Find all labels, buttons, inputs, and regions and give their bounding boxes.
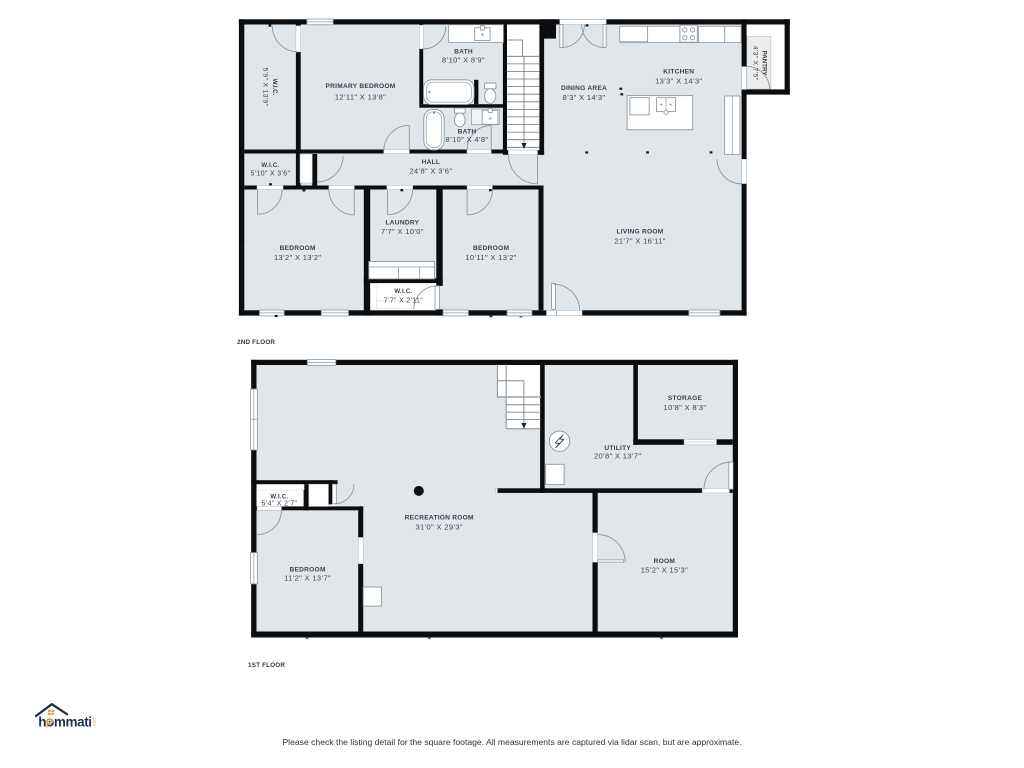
svg-text:2ND FLOOR: 2ND FLOOR bbox=[237, 339, 275, 346]
svg-text:5’4" X 2’7": 5’4" X 2’7" bbox=[262, 501, 298, 508]
svg-text:8’10" X 8’9": 8’10" X 8’9" bbox=[442, 56, 485, 65]
svg-text:.com: .com bbox=[92, 717, 97, 727]
svg-text:15’2" X 15’3": 15’2" X 15’3" bbox=[641, 566, 688, 575]
svg-text:10’8" X 8’3": 10’8" X 8’3" bbox=[664, 403, 707, 412]
svg-text:13’2" X 13’2": 13’2" X 13’2" bbox=[274, 253, 321, 262]
svg-text:STORAGE: STORAGE bbox=[668, 395, 703, 402]
svg-text:PANTRY: PANTRY bbox=[761, 51, 768, 77]
svg-text:W.I.C.: W.I.C. bbox=[394, 288, 412, 295]
svg-text:13’3" X 14’3": 13’3" X 14’3" bbox=[655, 76, 702, 85]
svg-text:BATH: BATH bbox=[454, 48, 473, 55]
svg-text:DINING AREA: DINING AREA bbox=[561, 85, 607, 92]
svg-text:8’10" X 4’8": 8’10" X 4’8" bbox=[446, 135, 489, 144]
svg-text:W.I.C.: W.I.C. bbox=[270, 493, 288, 500]
svg-text:12’11" X 13’8": 12’11" X 13’8" bbox=[335, 93, 386, 102]
svg-text:10’11" X 13’2": 10’11" X 13’2" bbox=[465, 253, 516, 262]
svg-text:W.I.C.: W.I.C. bbox=[271, 79, 278, 96]
svg-text:PRIMARY BEDROOM: PRIMARY BEDROOM bbox=[325, 83, 395, 90]
svg-text:4’3" X 7’5": 4’3" X 7’5" bbox=[751, 46, 758, 81]
svg-text:hommati: hommati bbox=[38, 714, 91, 729]
svg-text:7’7" X 10’0": 7’7" X 10’0" bbox=[381, 227, 424, 236]
svg-text:7’7" X 2’11": 7’7" X 2’11" bbox=[384, 297, 423, 304]
svg-text:24’8" X 3’6": 24’8" X 3’6" bbox=[409, 166, 452, 175]
svg-text:BEDROOM: BEDROOM bbox=[280, 245, 316, 252]
svg-text:LAUNDRY: LAUNDRY bbox=[386, 219, 420, 226]
svg-text:5’9" X 13’9": 5’9" X 13’9" bbox=[262, 68, 269, 107]
svg-text:BEDROOM: BEDROOM bbox=[473, 245, 509, 252]
svg-text:BEDROOM: BEDROOM bbox=[290, 566, 326, 573]
svg-text:Please check the listing detai: Please check the listing detail for the … bbox=[282, 737, 741, 747]
svg-text:5’10" X 3’6": 5’10" X 3’6" bbox=[251, 170, 291, 177]
svg-text:31’0" X 29’3": 31’0" X 29’3" bbox=[415, 522, 462, 531]
svg-text:1ST FLOOR: 1ST FLOOR bbox=[248, 662, 285, 669]
svg-text:ROOM: ROOM bbox=[654, 558, 676, 565]
svg-text:KITCHEN: KITCHEN bbox=[663, 69, 694, 76]
svg-text:W.I.C.: W.I.C. bbox=[261, 162, 279, 169]
svg-text:20’8" X 13’7": 20’8" X 13’7" bbox=[594, 452, 641, 461]
svg-text:LIVING ROOM: LIVING ROOM bbox=[616, 229, 663, 236]
svg-text:11’2" X 13’7": 11’2" X 13’7" bbox=[284, 573, 331, 582]
svg-text:RECREATION ROOM: RECREATION ROOM bbox=[405, 514, 474, 521]
svg-text:HALL: HALL bbox=[422, 159, 441, 166]
svg-text:21’7" X 16’11": 21’7" X 16’11" bbox=[614, 237, 665, 246]
svg-text:8’3" X 14’3": 8’3" X 14’3" bbox=[563, 93, 606, 102]
